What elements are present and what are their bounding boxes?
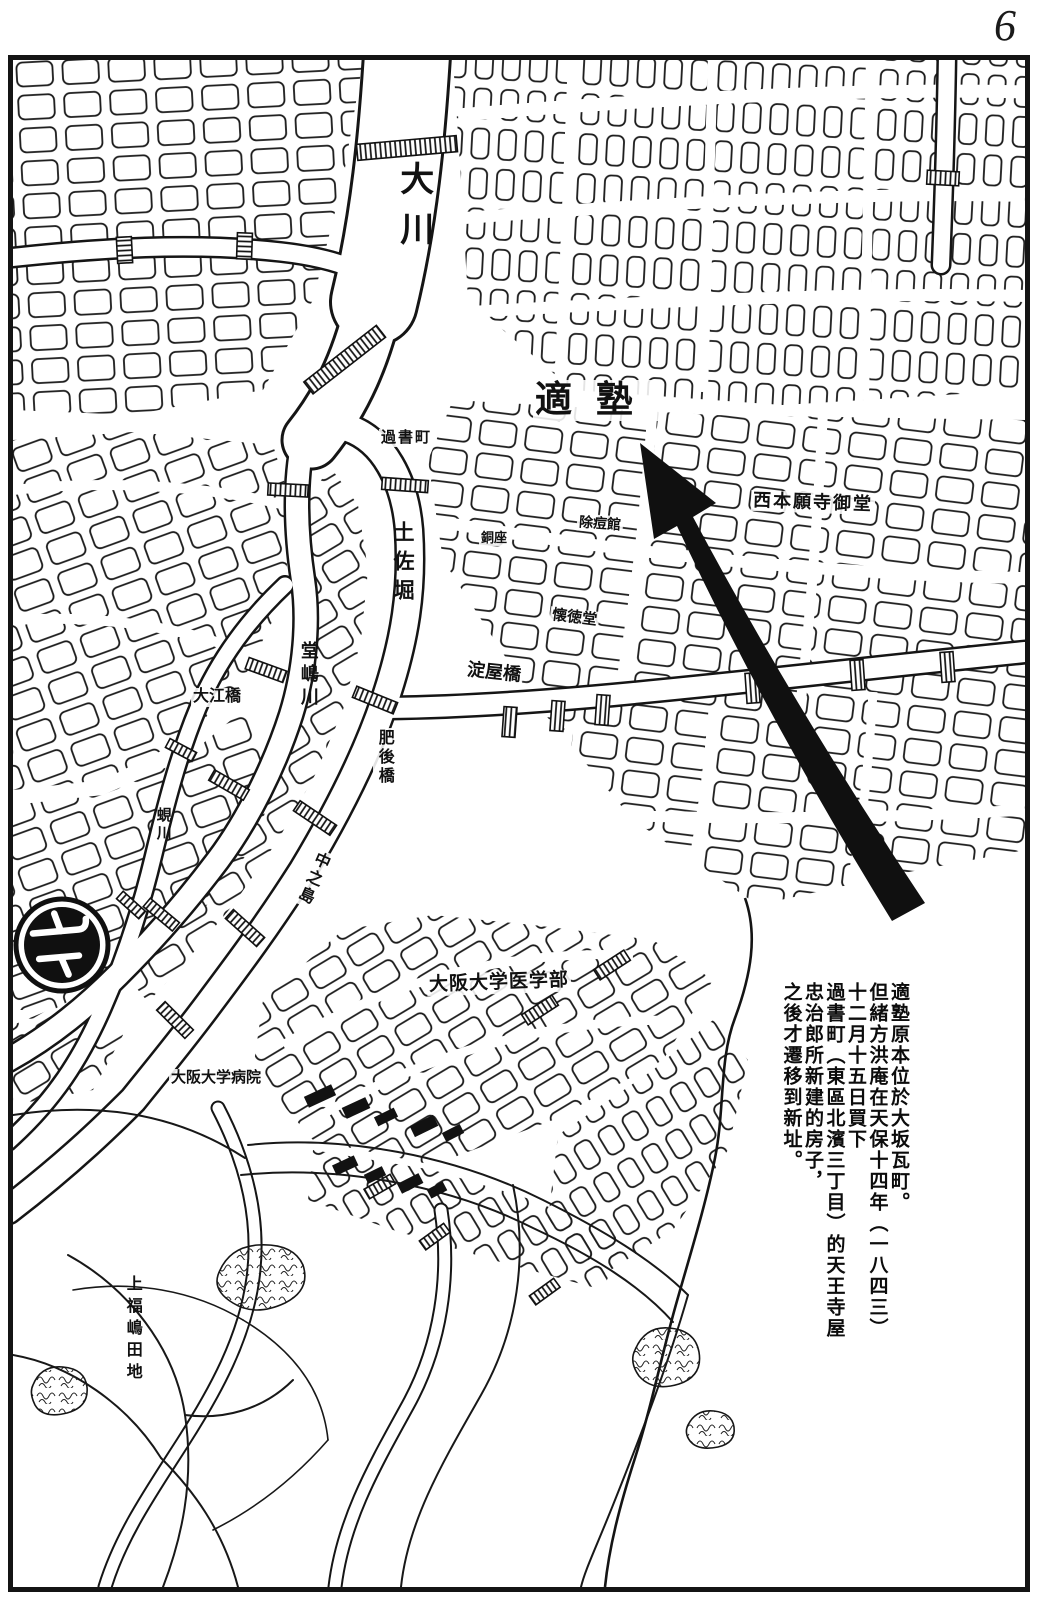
caption-line: 過書町（東區北濱三丁目）的天王寺屋: [823, 982, 845, 1456]
label-doza: 銅座: [479, 530, 509, 546]
label-dojima-river: 堂嶋川: [297, 640, 320, 711]
caption-line: 但緒方洪庵在天保十四年（一八四三）: [866, 982, 888, 1456]
caption-line: 之後才遷移到新址。: [780, 982, 802, 1456]
label-shijimi-river: 蜆川: [153, 806, 173, 844]
label-jotokan: 除痘館: [576, 513, 623, 533]
label-nishi-honganji-midou: 西本願寺御堂: [751, 490, 876, 515]
label-oebashi-bridge: 大江橋: [191, 688, 243, 707]
label-kakashomachi: 過書町: [379, 429, 434, 447]
map-illustration: 大川 過書町 土佐堀 堂嶋川 蜆川 中之島 大江橋 淀屋橋 肥後橋 適塾 西本願…: [13, 60, 1025, 1587]
label-kamifukushima-denchi: 上福嶋田地: [121, 1274, 142, 1386]
label-tosabori-river: 土佐堀: [389, 520, 415, 609]
caption-line: 十二月十五日買下: [845, 982, 867, 1456]
label-osaka-univ-hospital: 大阪大学病院: [169, 1069, 263, 1087]
label-okawa-river: 大川: [393, 160, 433, 262]
caption-line: 忠治郎所新建的房子，: [802, 982, 824, 1456]
label-higobashi-bridge: 肥後橋: [373, 728, 394, 787]
caption-text-block: 適塾原本位於大坂瓦町。 但緒方洪庵在天保十四年（一八四三） 十二月十五日買下 過…: [780, 982, 909, 1456]
page-number: 6: [994, 0, 1016, 51]
scanned-book-page: { "page": { "number": "6" }, "map": { "c…: [0, 0, 1041, 1600]
caption-line: 適塾原本位於大坂瓦町。: [888, 982, 910, 1456]
north-compass-icon: [16, 899, 108, 991]
label-tekijuku: 適塾: [533, 380, 659, 421]
map-frame: 大川 過書町 土佐堀 堂嶋川 蜆川 中之島 大江橋 淀屋橋 肥後橋 適塾 西本願…: [8, 55, 1030, 1592]
